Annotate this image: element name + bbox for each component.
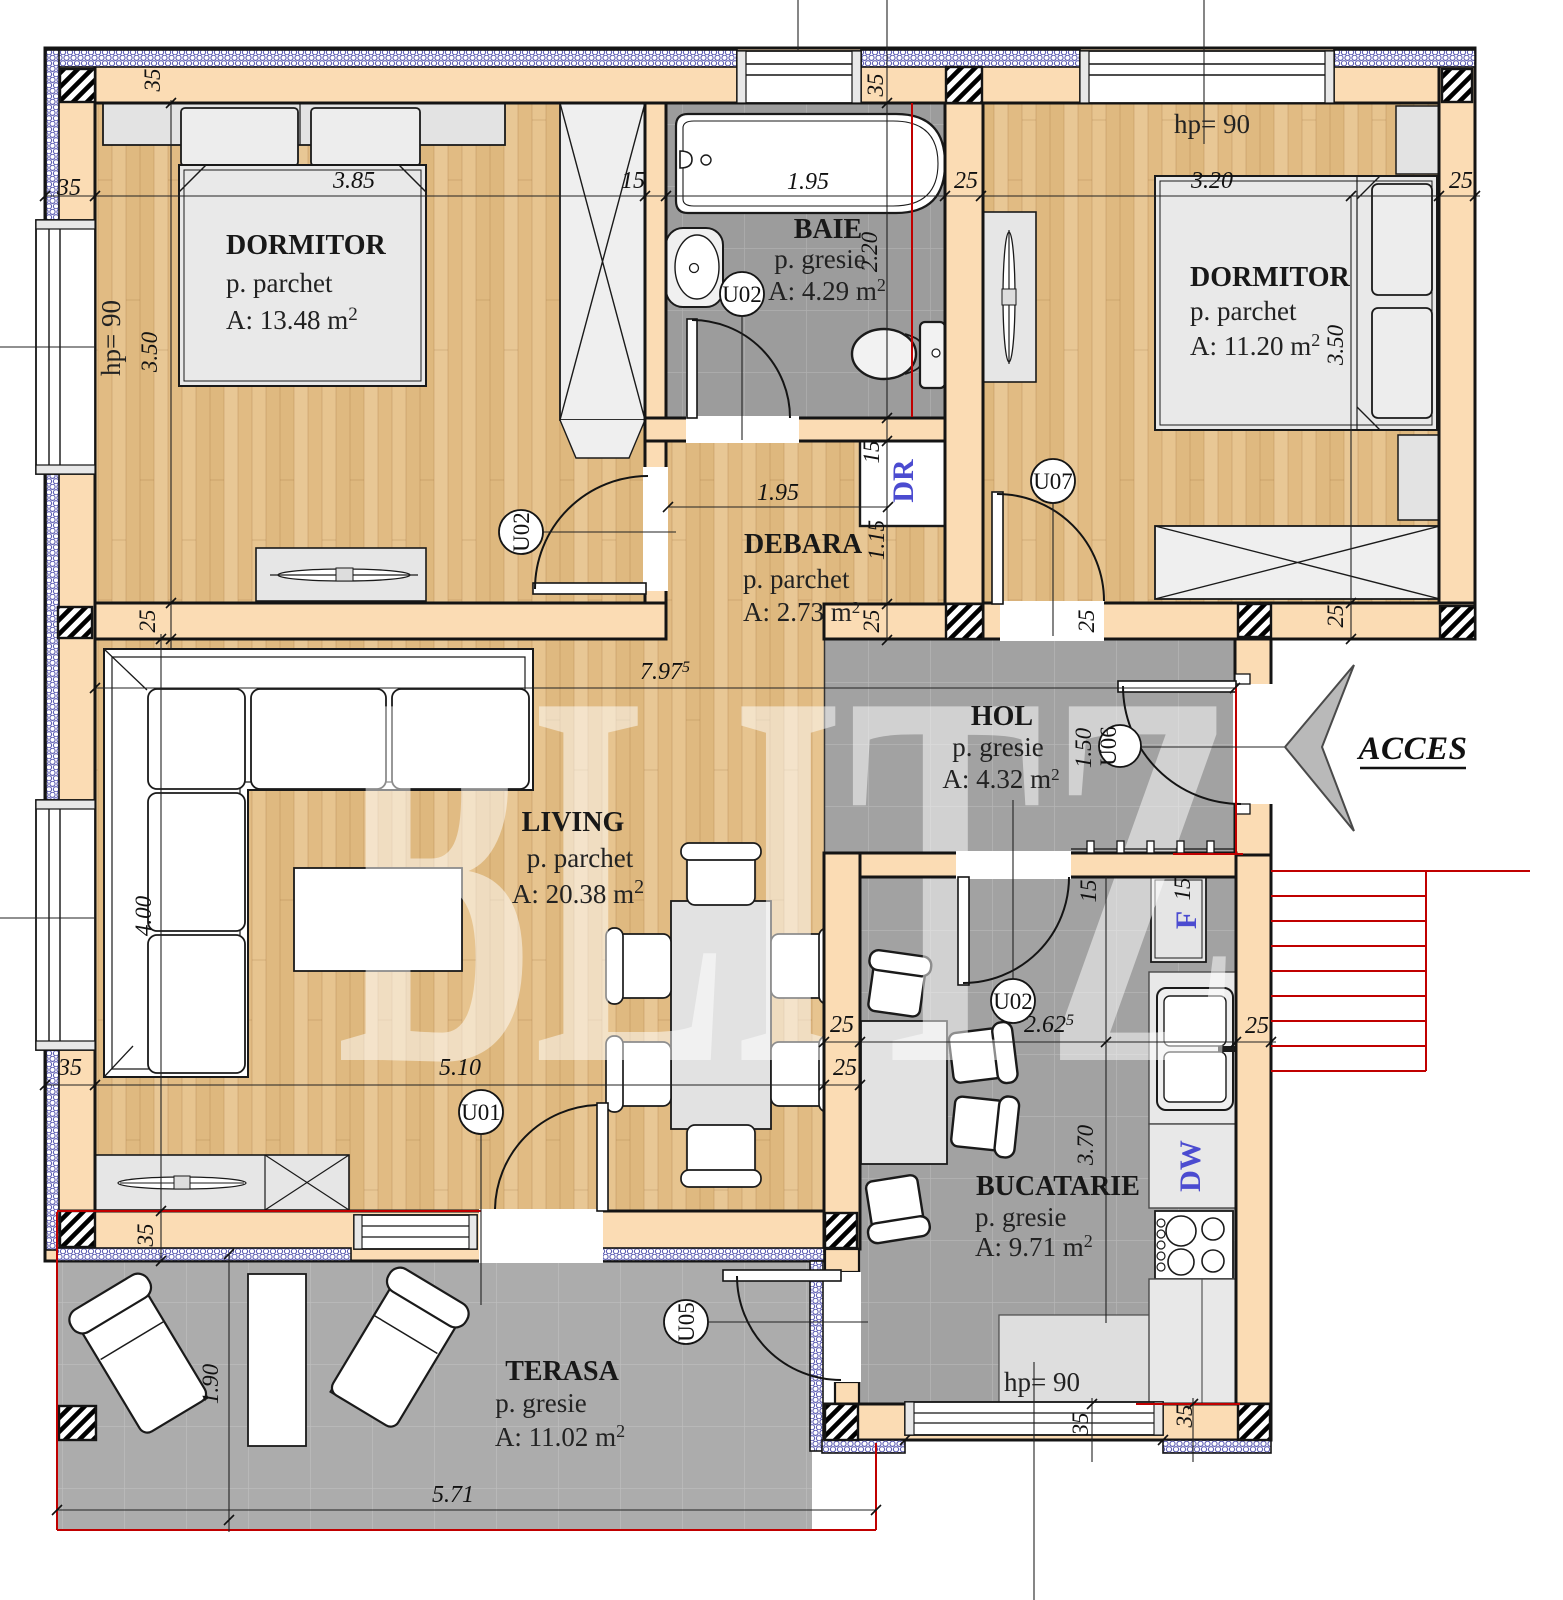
svg-text:3.70: 3.70: [1073, 1124, 1098, 1166]
svg-text:35: 35: [863, 74, 888, 98]
svg-text:35: 35: [140, 69, 165, 93]
svg-text:p. gresie: p. gresie: [975, 1202, 1066, 1232]
svg-text:BAIE: BAIE: [794, 214, 862, 245]
svg-text:A: 9.71 m2: A: 9.71 m2: [975, 1231, 1093, 1262]
svg-text:hp= 90: hp= 90: [96, 300, 126, 376]
svg-text:35: 35: [1068, 1413, 1093, 1437]
svg-text:3.20: 3.20: [1190, 168, 1233, 194]
svg-text:p. gresie: p. gresie: [952, 732, 1043, 762]
svg-text:p. parchet: p. parchet: [226, 268, 333, 298]
svg-text:U02: U02: [509, 512, 534, 552]
svg-text:p. gresie: p. gresie: [495, 1388, 586, 1418]
svg-text:3.50: 3.50: [1323, 324, 1348, 366]
svg-text:DR: DR: [887, 459, 920, 503]
svg-text:p. gresie: p. gresie: [774, 244, 865, 274]
svg-text:A: 11.02 m2: A: 11.02 m2: [495, 1421, 625, 1452]
svg-text:U07: U07: [1033, 469, 1073, 494]
svg-text:DORMITOR: DORMITOR: [226, 230, 386, 261]
svg-text:A: 2.73 m2: A: 2.73 m2: [743, 597, 860, 627]
svg-text:U05: U05: [674, 1302, 699, 1342]
svg-text:DEBARA: DEBARA: [744, 529, 863, 560]
svg-text:35: 35: [133, 1224, 158, 1248]
svg-text:U06: U06: [1096, 726, 1121, 766]
svg-text:25: 25: [1449, 168, 1473, 194]
svg-text:3.85: 3.85: [332, 168, 375, 194]
svg-text:HOL: HOL: [971, 701, 1033, 732]
svg-text:15: 15: [1170, 878, 1195, 901]
svg-text:p. parchet: p. parchet: [1190, 296, 1297, 326]
svg-text:A: 4.29 m2: A: 4.29 m2: [768, 275, 886, 306]
svg-text:15: 15: [621, 168, 645, 194]
svg-text:35: 35: [56, 175, 81, 201]
svg-text:5.10: 5.10: [439, 1055, 481, 1081]
svg-text:25: 25: [859, 610, 884, 633]
svg-text:DORMITOR: DORMITOR: [1190, 262, 1350, 293]
svg-text:U02: U02: [993, 989, 1033, 1014]
svg-text:A: 11.20 m2: A: 11.20 m2: [1190, 330, 1320, 361]
svg-text:p. parchet: p. parchet: [743, 564, 850, 594]
svg-text:15: 15: [859, 441, 884, 464]
svg-text:25: 25: [1323, 605, 1348, 628]
svg-text:1.50: 1.50: [1071, 727, 1096, 768]
svg-text:25: 25: [954, 168, 978, 194]
svg-text:DW: DW: [1174, 1140, 1207, 1192]
svg-text:A: 4.32 m2: A: 4.32 m2: [942, 764, 1059, 794]
svg-text:TERASA: TERASA: [505, 1356, 619, 1387]
svg-text:A: 13.48 m2: A: 13.48 m2: [226, 304, 358, 335]
svg-text:1.95: 1.95: [787, 169, 829, 195]
svg-text:25: 25: [1074, 610, 1099, 633]
svg-text:35: 35: [1172, 1405, 1197, 1429]
svg-text:U01: U01: [461, 1100, 501, 1125]
svg-text:hp= 90: hp= 90: [1174, 109, 1250, 139]
svg-text:A: 20.38 m2: A: 20.38 m2: [512, 876, 644, 909]
svg-text:5.71: 5.71: [432, 1482, 474, 1508]
svg-text:1.90: 1.90: [198, 1363, 223, 1404]
svg-text:F: F: [1170, 911, 1203, 929]
svg-text:4.00: 4.00: [131, 895, 156, 936]
svg-text:25: 25: [833, 1055, 857, 1081]
svg-text:BUCATARIE: BUCATARIE: [976, 1171, 1140, 1202]
svg-text:25: 25: [1245, 1013, 1269, 1039]
svg-text:1.15: 1.15: [864, 520, 889, 560]
svg-text:35: 35: [57, 1055, 82, 1081]
svg-text:hp= 90: hp= 90: [1004, 1367, 1080, 1397]
svg-text:U02: U02: [722, 282, 762, 307]
svg-text:3.50: 3.50: [137, 331, 162, 373]
svg-text:p. parchet: p. parchet: [527, 843, 634, 873]
svg-text:LIVING: LIVING: [522, 807, 625, 838]
svg-text:ACCES: ACCES: [1357, 731, 1468, 767]
svg-text:15: 15: [1076, 880, 1101, 903]
svg-text:25: 25: [830, 1012, 854, 1038]
svg-text:1.95: 1.95: [757, 480, 799, 506]
svg-text:25: 25: [135, 610, 160, 633]
